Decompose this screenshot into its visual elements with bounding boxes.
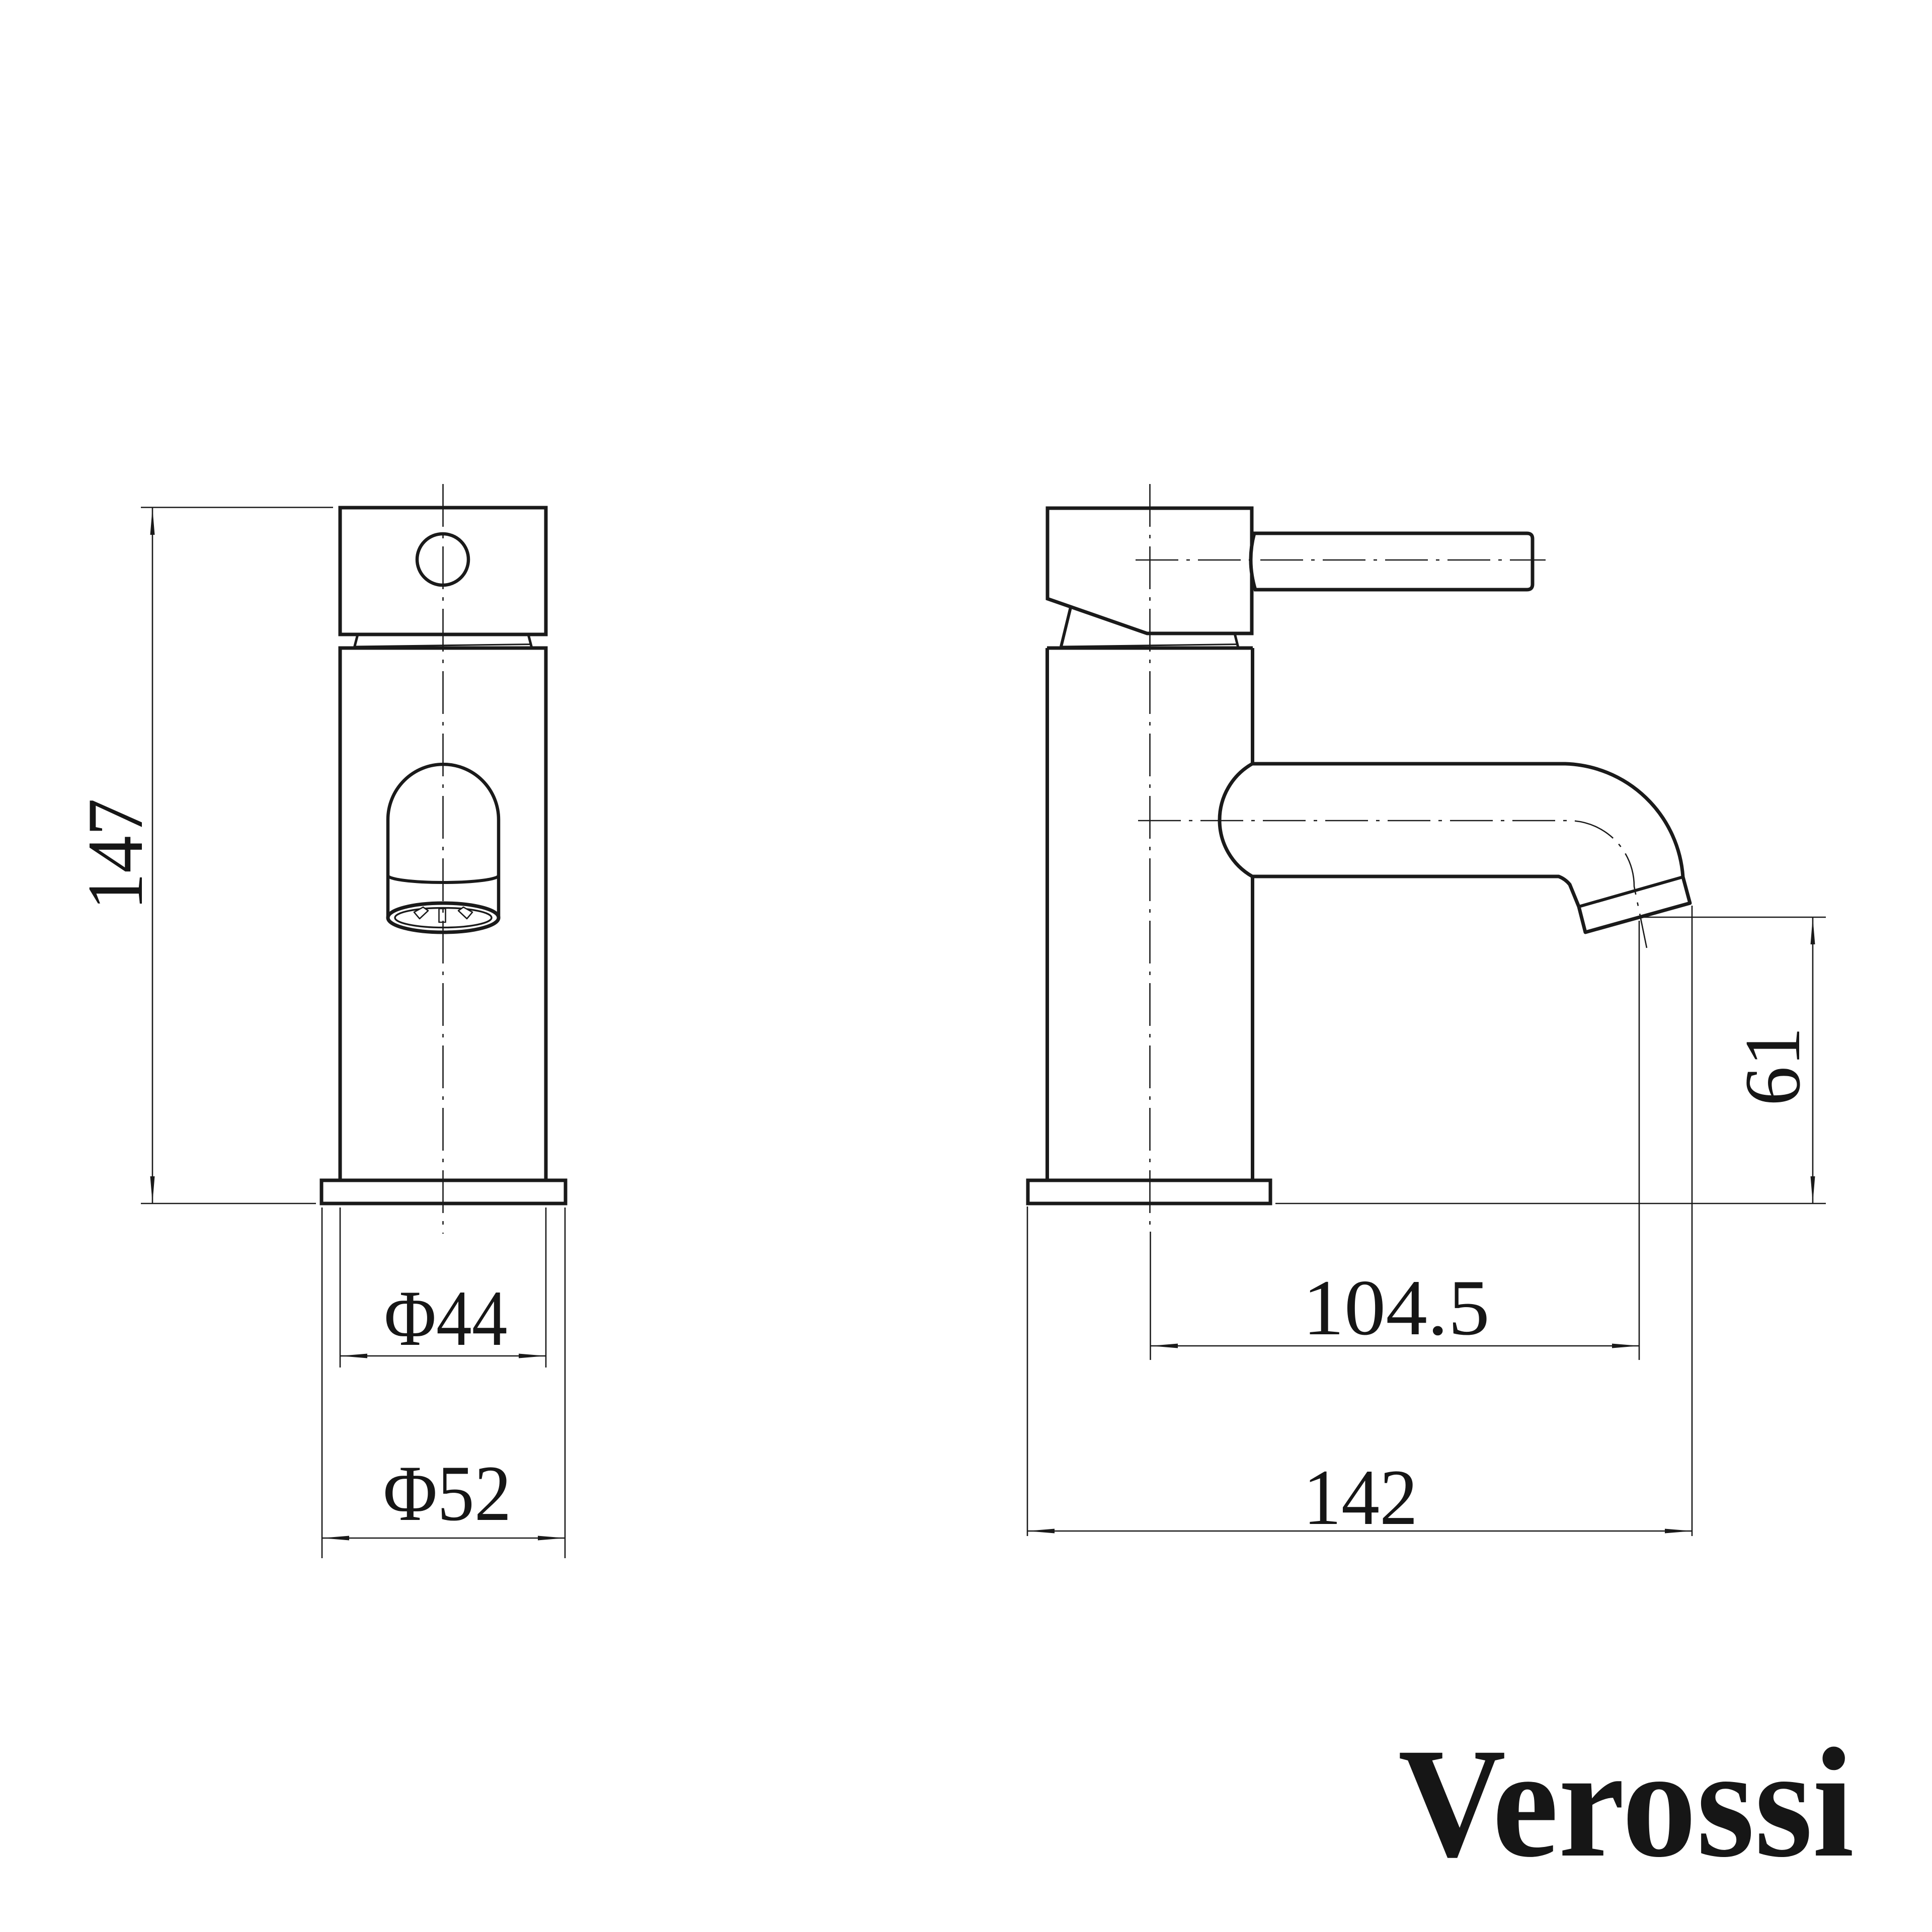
svg-text:Verossi: Verossi: [1398, 1716, 1854, 1890]
svg-text:142: 142: [1303, 1454, 1418, 1542]
svg-text:Φ52: Φ52: [383, 1450, 512, 1538]
svg-text:61: 61: [1729, 1027, 1817, 1106]
svg-text:147: 147: [71, 798, 159, 910]
svg-text:104.5: 104.5: [1303, 1264, 1490, 1352]
svg-text:Φ44: Φ44: [384, 1274, 508, 1362]
